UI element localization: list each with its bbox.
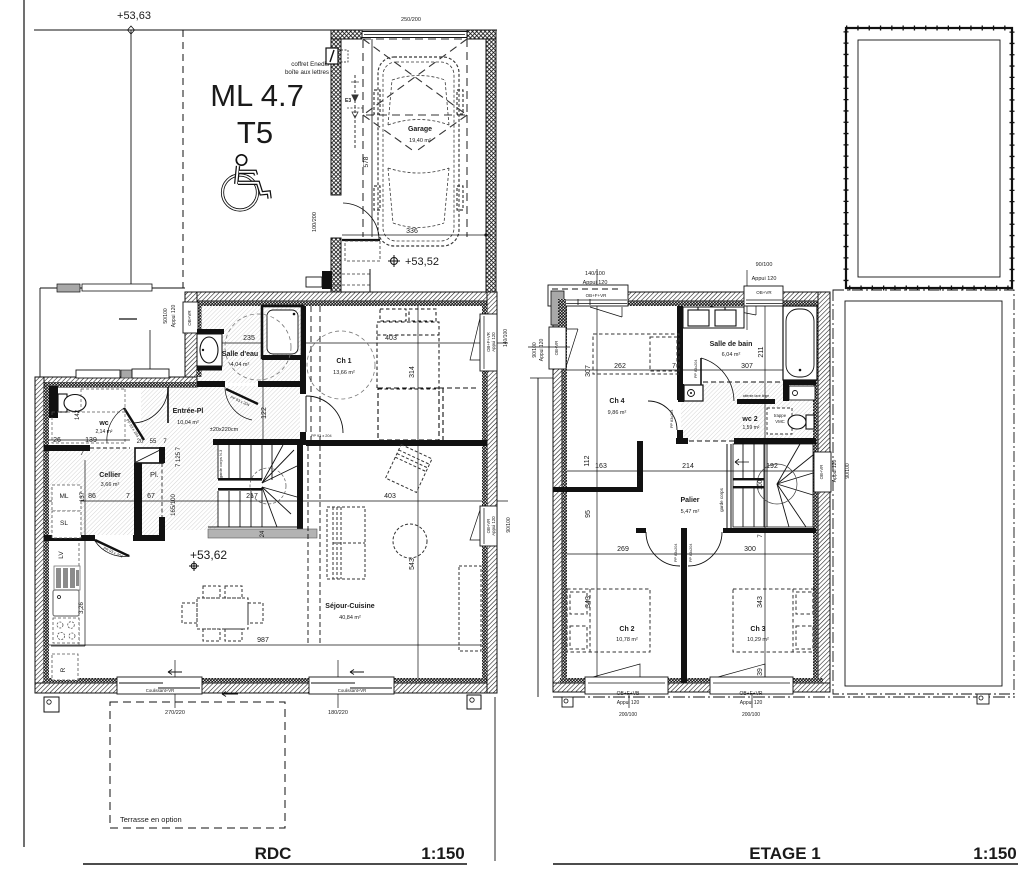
svg-text:67: 67 [147,493,155,500]
svg-text:262: 262 [614,363,626,370]
svg-text:Cellier: Cellier [99,472,121,479]
svg-text:T5: T5 [237,115,273,150]
svg-text:269: 269 [617,546,629,553]
svg-text:Appui 120: Appui 120 [617,700,640,706]
svg-text:10,78 m²: 10,78 m² [616,637,638,643]
svg-text:±20x220cm: ±20x220cm [210,427,239,433]
svg-text:578: 578 [363,156,370,167]
svg-text:PP 83x204: PP 83x204 [694,359,698,378]
svg-text:235: 235 [243,335,255,342]
svg-text:PP 83x204: PP 83x204 [670,409,674,428]
svg-text:Coulissant+VR: Coulissant+VR [338,688,367,693]
svg-text:307: 307 [741,363,753,370]
svg-text:wc: wc [98,420,108,427]
svg-text:E3: E3 [345,98,351,104]
svg-text:ETAGE 1: ETAGE 1 [749,844,820,863]
svg-text:SL: SL [60,520,68,527]
svg-text:55: 55 [150,439,157,445]
svg-text:7: 7 [80,450,84,457]
svg-text:1,59 m²: 1,59 m² [743,425,760,431]
svg-text:50/100: 50/100 [163,308,169,324]
svg-text:987: 987 [257,637,269,644]
svg-text:140/100: 140/100 [503,329,509,347]
svg-text:1:150: 1:150 [973,844,1016,863]
svg-text:100: 100 [758,479,764,490]
svg-text:Appui 120: Appui 120 [752,276,777,282]
svg-text:Séjour-Cuisine: Séjour-Cuisine [325,603,375,610]
svg-text:137: 137 [80,491,86,502]
svg-text:Appui 120: Appui 120 [539,339,545,362]
svg-text:5,47 m²: 5,47 m² [681,509,700,515]
svg-text:1:150: 1:150 [421,844,464,863]
svg-text:214: 214 [682,463,694,470]
svg-text:PP 83x204: PP 83x204 [689,543,693,562]
svg-text:Ch 4: Ch 4 [609,398,624,405]
svg-text:20: 20 [137,439,144,445]
svg-text:Salle d'eau: Salle d'eau [222,351,258,358]
svg-text:10,04 m²: 10,04 m² [177,420,199,426]
svg-text:90/100: 90/100 [532,342,538,358]
svg-text:Appui 120: Appui 120 [583,280,608,286]
svg-text:200/100: 200/100 [742,712,760,718]
svg-text:Appui 120: Appui 120 [171,305,177,328]
svg-text:+53,62: +53,62 [190,548,227,562]
svg-text:7 125 7: 7 125 7 [176,446,182,467]
svg-text:26: 26 [53,437,61,444]
svg-text:Appui 120: Appui 120 [491,516,496,536]
svg-text:3,66 m²: 3,66 m² [101,482,120,488]
svg-text:211: 211 [758,346,765,357]
svg-text:garde corps: garde corps [719,487,724,512]
svg-text:OB+VR: OB+VR [187,310,192,326]
svg-text:217: 217 [246,493,258,500]
svg-text:Ch 1: Ch 1 [336,358,351,365]
svg-text:90/100: 90/100 [756,262,773,268]
svg-text:2,14 m²: 2,14 m² [96,429,113,435]
svg-text:PP 83x204: PP 83x204 [674,543,678,562]
svg-text:Salle de bain: Salle de bain [710,341,753,348]
svg-text:39: 39 [757,668,764,676]
svg-text:Appui 120: Appui 120 [740,700,763,706]
svg-text:122: 122 [261,407,268,419]
svg-text:OB+VR: OB+VR [554,341,559,356]
svg-text:140/100: 140/100 [585,271,605,277]
svg-text:3,26: 3,26 [79,602,85,614]
svg-text:165/100: 165/100 [171,494,177,516]
svg-text:314: 314 [409,366,416,378]
svg-text:RDC: RDC [255,844,292,863]
svg-text:40,84 m²: 40,84 m² [339,615,361,621]
svg-text:boîte aux lettres: boîte aux lettres [285,69,329,76]
svg-text:VMC: VMC [775,419,785,424]
svg-text:OB+VR: OB+VR [756,290,772,295]
svg-text:163: 163 [595,463,607,470]
svg-text:+53,52: +53,52 [405,256,439,268]
svg-text:10,29 m²: 10,29 m² [747,637,769,643]
svg-text:Entrée-Pl: Entrée-Pl [173,408,204,415]
svg-text:403: 403 [384,493,396,500]
svg-text:90/100: 90/100 [506,517,512,533]
svg-text:13,66 m²: 13,66 m² [333,370,355,376]
svg-text:9,86 m²: 9,86 m² [608,410,627,416]
svg-text:OB+VR: OB+VR [819,465,824,480]
svg-text:343: 343 [585,596,592,608]
svg-text:OB+F+VR: OB+F+VR [586,293,608,298]
svg-text:garde corps N.3: garde corps N.3 [218,449,223,478]
svg-text:trappe: trappe [774,413,787,418]
svg-text:180/220: 180/220 [328,710,348,716]
svg-text:LV: LV [58,551,65,559]
svg-text:Pl.: Pl. [150,470,159,479]
svg-text:Garage: Garage [408,126,432,133]
svg-text:142: 142 [75,409,81,420]
svg-text:7: 7 [126,493,130,500]
svg-text:200/100: 200/100 [619,712,637,718]
svg-text:90/100: 90/100 [845,463,851,479]
svg-text:270/220: 270/220 [165,710,185,716]
svg-text:543: 543 [409,558,416,570]
svg-text:ML: ML [59,493,68,500]
svg-text:300: 300 [744,546,756,553]
svg-text:307: 307 [585,365,592,377]
svg-text:R: R [60,667,67,672]
svg-text:Ch 2: Ch 2 [619,626,634,633]
svg-text:ML 4.7: ML 4.7 [210,78,304,113]
svg-text:OB+F+VR: OB+F+VR [739,691,762,697]
svg-text:336: 336 [406,228,418,235]
svg-text:wc 2: wc 2 [741,416,757,423]
svg-text:attente lave linge: attente lave linge [743,394,770,398]
svg-text:19,40 m²: 19,40 m² [409,138,431,144]
svg-text:7: 7 [672,363,676,370]
svg-text:PP 93 x 204: PP 93 x 204 [311,434,332,438]
svg-text:403: 403 [385,335,397,342]
svg-text:95: 95 [585,510,592,518]
svg-text:Appui 120: Appui 120 [491,332,496,352]
svg-text:OB+F+VB: OB+F+VB [617,691,640,697]
svg-text:4,04 m²: 4,04 m² [231,362,250,368]
svg-text:+53,63: +53,63 [117,10,151,22]
svg-text:Coulissant+VR: Coulissant+VR [146,688,175,693]
svg-text:250/200: 250/200 [401,17,421,23]
svg-text:Ch 3: Ch 3 [750,626,765,633]
svg-text:112: 112 [584,455,591,466]
svg-text:139: 139 [85,437,97,444]
svg-text:86: 86 [88,493,96,500]
svg-text:24: 24 [260,530,266,537]
svg-text:343: 343 [757,596,764,608]
svg-text:Terrasse en option: Terrasse en option [120,815,182,824]
svg-text:Palier: Palier [680,497,699,504]
svg-text:6,04 m²: 6,04 m² [722,352,741,358]
svg-text:coffret Enedis: coffret Enedis [291,61,329,68]
svg-text:100/200: 100/200 [312,212,318,232]
